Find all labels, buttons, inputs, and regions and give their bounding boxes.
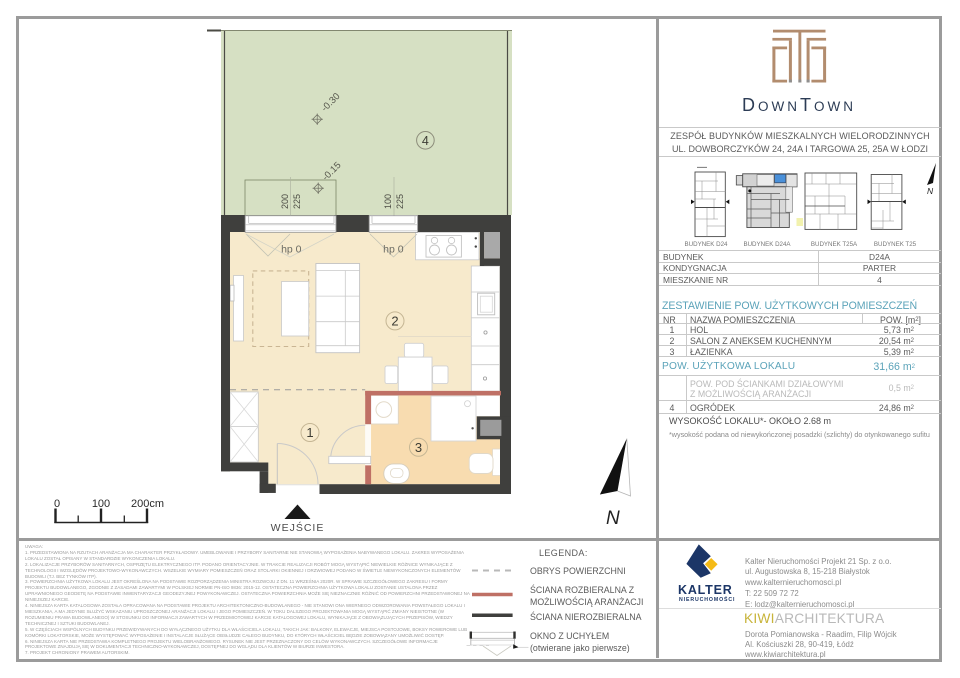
svg-text:225: 225 [292,194,302,209]
svg-text:WEJŚCIE: WEJŚCIE [271,521,325,534]
svg-text:hp 0: hp 0 [281,244,302,256]
svg-text:3: 3 [415,440,422,455]
svg-text:N: N [927,186,934,196]
svg-text:1: 1 [306,425,313,440]
svg-text:DOWNTOWN: DOWNTOWN [742,95,856,115]
svg-text:0: 0 [54,498,60,510]
svg-text:100: 100 [383,194,393,209]
svg-text:100: 100 [92,498,110,510]
svg-text:4: 4 [422,134,429,148]
svg-text:225: 225 [395,194,405,209]
svg-text:200: 200 [280,194,290,209]
svg-text:N: N [606,508,620,529]
svg-text:hp 0: hp 0 [383,244,404,256]
svg-text:2: 2 [391,313,398,328]
svg-text:200cm: 200cm [131,498,164,510]
